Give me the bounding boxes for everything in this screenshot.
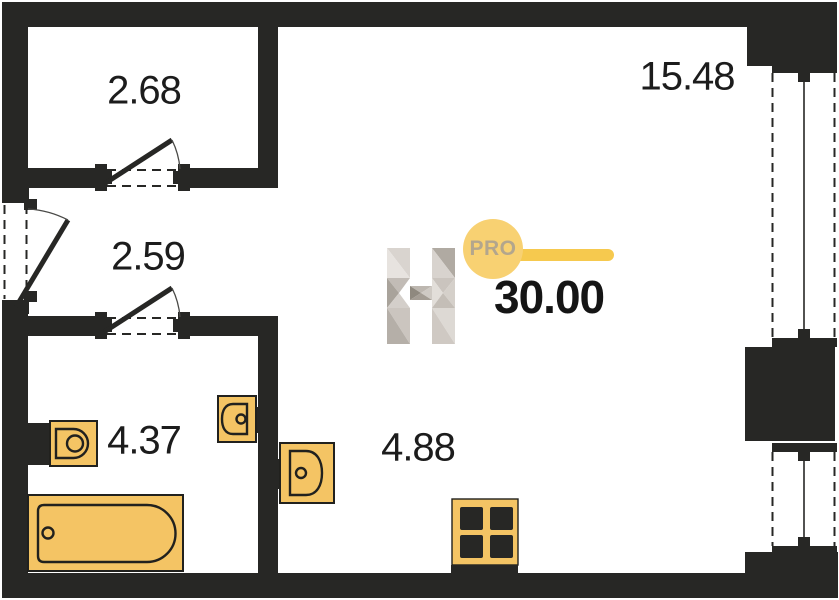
- bathroom-door-leaf: [104, 288, 172, 332]
- stove-burner-4: [490, 535, 513, 558]
- stove-burner-2: [490, 507, 513, 530]
- h-logo: [387, 248, 455, 344]
- closet-door-leaf: [104, 140, 172, 184]
- stove-burner-3: [460, 535, 483, 558]
- closet-door-swing-arc: [172, 140, 180, 169]
- entry-door-swing-arc: [28, 209, 68, 220]
- toilet-tank: [28, 423, 52, 465]
- entry-door-leaf: [16, 220, 68, 307]
- area-label-bathroom: 4.37: [107, 419, 181, 464]
- total-area-value: 30.00: [494, 270, 604, 324]
- bathroom-door-swing-arc: [172, 288, 180, 317]
- floor-plan: 2.68 15.48 2.59 4.37 4.88 PRO 30.00: [0, 0, 839, 600]
- logo-pro-label: PRO: [469, 237, 516, 261]
- area-label-closet: 2.68: [107, 69, 181, 114]
- area-label-kitchen-zone: 4.88: [381, 426, 455, 471]
- area-label-living-room: 15.48: [639, 55, 734, 100]
- stove-base: [451, 565, 518, 573]
- stove-burner-1: [460, 507, 483, 530]
- area-label-hallway: 2.59: [111, 235, 185, 280]
